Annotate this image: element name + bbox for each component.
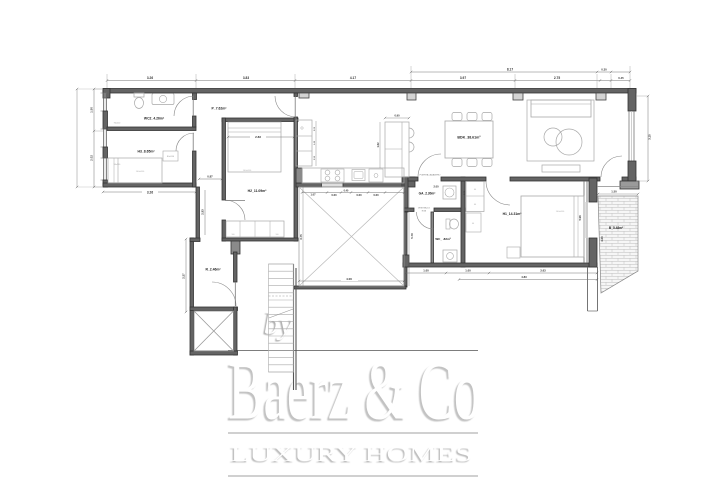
svg-text:H1_14.31m²: H1_14.31m² [503, 212, 523, 216]
svg-text:3.26: 3.26 [147, 191, 153, 195]
svg-text:5.98: 5.98 [578, 215, 582, 221]
svg-text:3.26: 3.26 [147, 76, 153, 80]
svg-text:2.75: 2.75 [554, 76, 560, 80]
svg-text:1.07: 1.07 [310, 192, 316, 196]
svg-text:BDK_38.61m²: BDK_38.61m² [457, 136, 481, 140]
svg-text:0.60: 0.60 [373, 193, 379, 197]
svg-text:90x210: 90x210 [114, 123, 121, 125]
svg-text:by: by [264, 306, 294, 341]
svg-text:PUERTA LAVADERO: PUERTA LAVADERO [420, 174, 441, 177]
svg-text:H2_11.09m²: H2_11.09m² [248, 189, 268, 193]
svg-text:H3_8.65m²: H3_8.65m² [138, 150, 156, 154]
svg-text:5.79: 5.79 [410, 233, 414, 239]
svg-text:0.90: 0.90 [394, 114, 400, 118]
svg-text:100: 100 [232, 234, 235, 236]
svg-text:0.45: 0.45 [618, 76, 624, 80]
svg-text:VESTÍBULO: VESTÍBULO [418, 207, 431, 210]
svg-text:4.00: 4.00 [346, 277, 352, 281]
svg-text:60: 60 [474, 204, 477, 206]
svg-text:0.90: 0.90 [314, 155, 316, 160]
svg-text:WC_ .82m²: WC_ .82m² [435, 237, 450, 241]
svg-text:ECM: ECM [422, 210, 427, 212]
svg-text:3.75: 3.75 [299, 234, 303, 240]
svg-text:1.62: 1.62 [376, 142, 380, 148]
svg-text:3.10: 3.10 [648, 134, 652, 140]
svg-text:80x190: 80x190 [167, 156, 175, 158]
svg-text:B_5.48m²: B_5.48m² [609, 226, 623, 230]
svg-text:1.00: 1.00 [423, 269, 429, 273]
svg-text:4.00: 4.00 [600, 236, 604, 242]
svg-text:1.50: 1.50 [90, 107, 94, 113]
svg-text:2.83: 2.83 [201, 209, 205, 215]
svg-text:0.40: 0.40 [344, 190, 349, 193]
svg-text:WC2_4.26m²: WC2_4.26m² [144, 117, 165, 121]
svg-text:0.30: 0.30 [601, 68, 607, 72]
svg-text:140x200: 140x200 [556, 211, 565, 213]
svg-text:P_7.62m²: P_7.62m² [212, 107, 228, 111]
svg-text:40: 40 [472, 223, 475, 225]
svg-text:0.60: 0.60 [314, 126, 316, 131]
svg-text:4.83: 4.83 [521, 275, 527, 279]
svg-text:100: 100 [276, 234, 279, 236]
svg-text:R_2.46m²: R_2.46m² [205, 268, 221, 272]
svg-text:8.17: 8.17 [507, 68, 513, 72]
svg-text:0.60: 0.60 [331, 193, 337, 197]
svg-text:LUXURY HOMES: LUXURY HOMES [231, 442, 473, 466]
svg-text:2.02: 2.02 [90, 155, 94, 161]
svg-text:2.83: 2.83 [255, 135, 261, 139]
svg-text:90x210: 90x210 [114, 164, 121, 166]
svg-text:Baerz & Co: Baerz & Co [228, 345, 480, 438]
svg-text:0.60: 0.60 [356, 193, 362, 197]
svg-text:GA_2.30m²: GA_2.30m² [419, 192, 436, 196]
svg-text:140x200: 140x200 [136, 171, 145, 173]
svg-text:140x200: 140x200 [243, 170, 252, 172]
svg-text:2.00: 2.00 [433, 185, 439, 189]
svg-text:60: 60 [474, 189, 477, 191]
svg-text:1.00: 1.00 [465, 269, 471, 273]
svg-text:3.63: 3.63 [540, 269, 546, 273]
svg-text:2.57: 2.57 [182, 273, 186, 279]
svg-text:3.83: 3.83 [243, 76, 249, 80]
svg-text:3.97: 3.97 [460, 76, 466, 80]
svg-text:1.50: 1.50 [611, 190, 617, 194]
svg-text:4.17: 4.17 [350, 76, 356, 80]
svg-text:0.87: 0.87 [207, 175, 213, 179]
svg-text:1.40: 1.40 [314, 140, 316, 145]
